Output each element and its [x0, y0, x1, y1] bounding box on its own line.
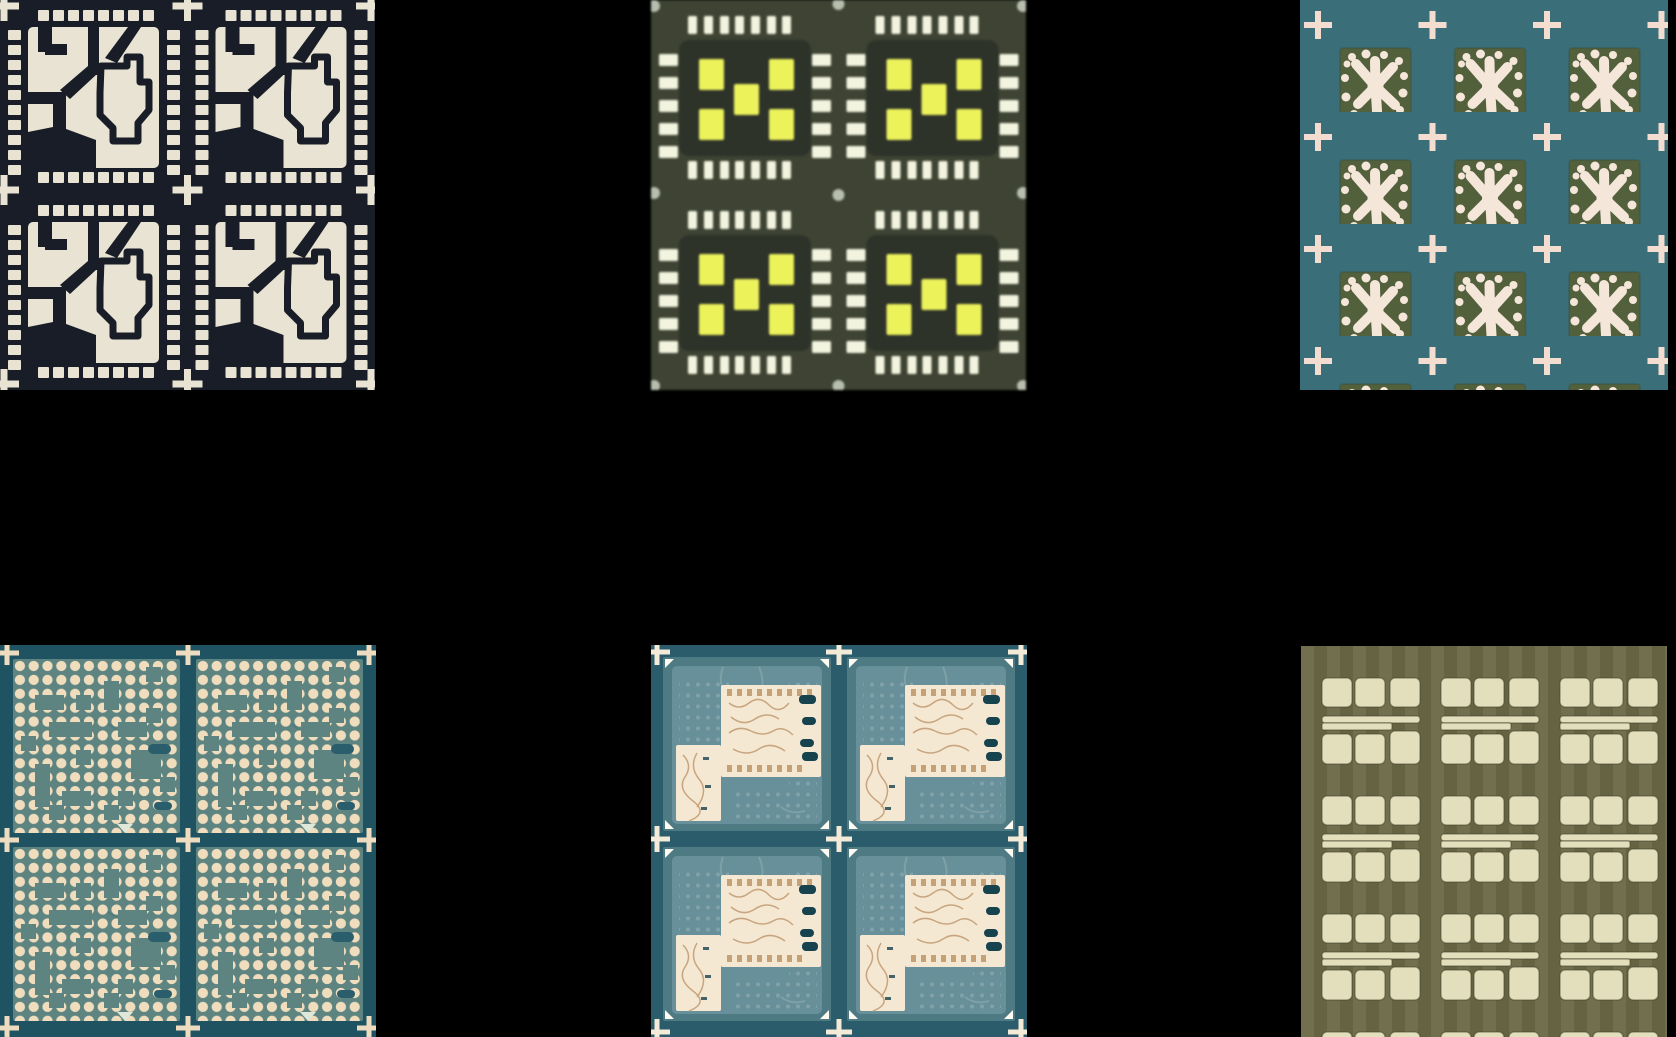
photo-module-panel [651, 645, 1027, 1037]
leadframe-panel-art [0, 0, 375, 390]
collage-canvas [0, 0, 1676, 1037]
bga-panel-art [0, 645, 376, 1037]
olive-panel-art [1301, 646, 1667, 1037]
splat-panel-art [1300, 0, 1668, 390]
qfn-panel-art [651, 0, 1026, 390]
splat-cells [1300, 0, 1668, 390]
photo-leadframe-panel [0, 0, 375, 390]
photo-olive-pads-panel [1301, 646, 1667, 1037]
module-panel-art [651, 645, 1027, 1037]
photo-bga-grid-panel [0, 645, 376, 1037]
photo-splat-array-panel [1300, 0, 1668, 390]
photo-qfn-yellow-panel [651, 0, 1026, 390]
